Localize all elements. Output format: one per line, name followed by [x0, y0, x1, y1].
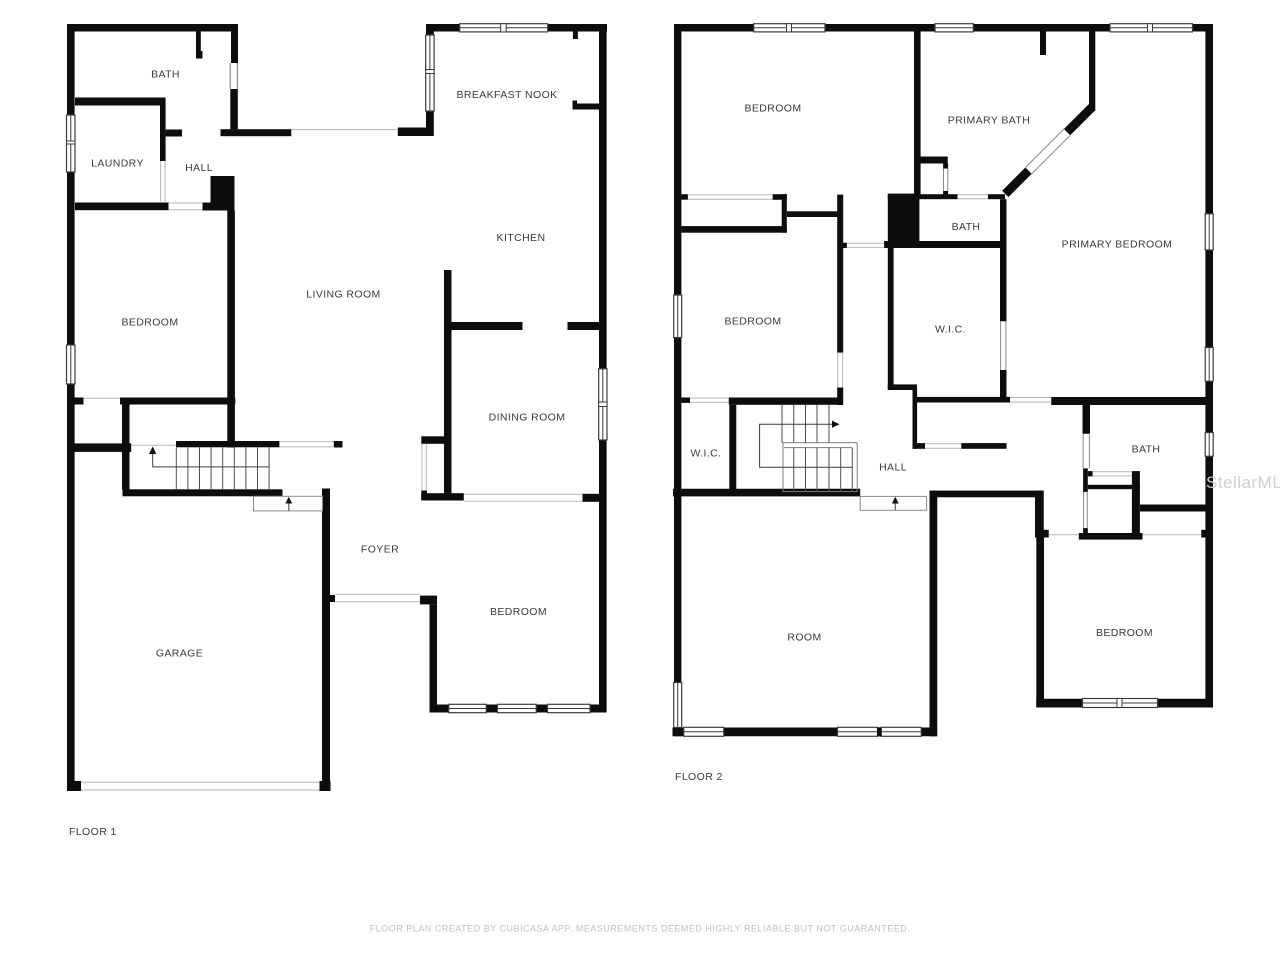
svg-text:HALL: HALL [879, 462, 907, 474]
svg-text:KITCHEN: KITCHEN [497, 232, 546, 244]
svg-text:BREAKFAST NOOK: BREAKFAST NOOK [456, 89, 557, 101]
svg-text:FOYER: FOYER [361, 544, 399, 556]
svg-text:BEDROOM: BEDROOM [744, 103, 801, 115]
svg-text:BATH: BATH [151, 69, 180, 81]
svg-text:BEDROOM: BEDROOM [724, 316, 781, 328]
svg-text:W.I.C.: W.I.C. [935, 324, 966, 336]
svg-text:W.I.C.: W.I.C. [691, 448, 722, 460]
svg-text:BATH: BATH [1132, 444, 1161, 456]
svg-text:LAUNDRY: LAUNDRY [91, 158, 144, 170]
svg-text:DINING ROOM: DINING ROOM [489, 412, 566, 424]
svg-text:BATH: BATH [952, 221, 981, 233]
svg-text:BEDROOM: BEDROOM [490, 606, 547, 618]
svg-text:ROOM: ROOM [787, 632, 821, 644]
svg-text:LIVING ROOM: LIVING ROOM [306, 289, 380, 301]
svg-text:StellarMLS: StellarMLS [1206, 473, 1280, 492]
svg-text:PRIMARY BEDROOM: PRIMARY BEDROOM [1062, 239, 1173, 251]
svg-text:PRIMARY BATH: PRIMARY BATH [948, 115, 1030, 127]
svg-text:BEDROOM: BEDROOM [1096, 627, 1153, 639]
svg-text:FLOOR 1: FLOOR 1 [69, 826, 117, 838]
svg-text:HALL: HALL [185, 162, 213, 174]
svg-text:GARAGE: GARAGE [156, 648, 203, 660]
svg-text:FLOOR PLAN CREATED BY CUBICASA: FLOOR PLAN CREATED BY CUBICASA APP. MEAS… [370, 924, 910, 934]
svg-text:BEDROOM: BEDROOM [121, 317, 178, 329]
svg-text:FLOOR 2: FLOOR 2 [675, 771, 723, 783]
